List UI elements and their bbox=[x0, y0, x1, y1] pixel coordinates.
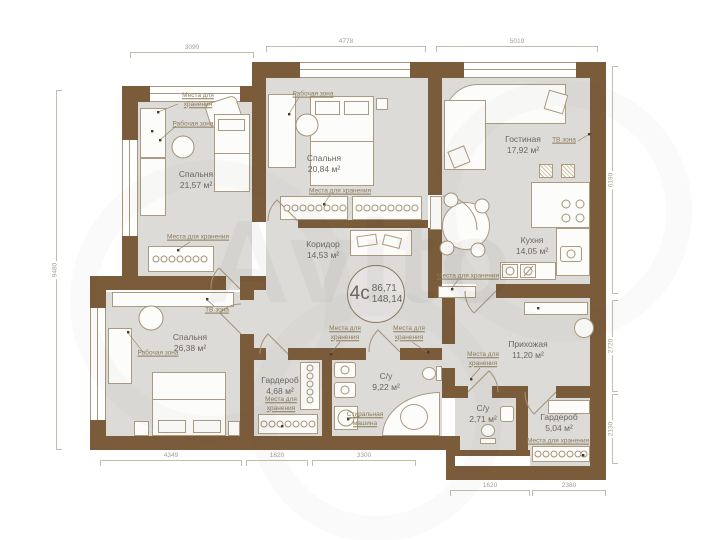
zone-label-work: Рабочая зона bbox=[138, 350, 179, 359]
zone-label-tv: ТВ зона bbox=[552, 137, 576, 146]
room-label-bathroom1: С/у 9,22 м² bbox=[372, 371, 400, 393]
dimension-right-1: 6190 bbox=[612, 66, 618, 294]
appliance-oven bbox=[520, 264, 536, 278]
room-label-hallway: Прихожая 11,20 м² bbox=[508, 339, 547, 361]
dimension-bottom-4: 1620 bbox=[450, 490, 530, 496]
nightstand bbox=[228, 421, 240, 436]
sink bbox=[334, 382, 356, 398]
door-gap-floor bbox=[366, 348, 400, 360]
room-name: Гардероб bbox=[540, 412, 577, 423]
storage-niche bbox=[438, 286, 476, 298]
dimension-bottom-2: 1820 bbox=[246, 460, 308, 466]
blanket-line bbox=[215, 153, 249, 154]
unit-type: 4с bbox=[350, 283, 370, 305]
pillow bbox=[193, 420, 221, 433]
wall-bathroom1-top-a bbox=[296, 348, 366, 360]
room-label-bedroom2: Спальня 20,84 м² bbox=[307, 153, 341, 175]
blanket-line bbox=[153, 399, 225, 400]
window-left-lower bbox=[90, 308, 106, 420]
room-name: С/у bbox=[469, 403, 497, 414]
wall-wardrobe1-top-a bbox=[254, 348, 266, 360]
door-gap-floor bbox=[528, 386, 556, 398]
zone-label-storage: Места для хранения bbox=[527, 438, 589, 447]
cushion bbox=[382, 234, 402, 249]
wall-wardrobe1-bathroom1 bbox=[322, 360, 332, 436]
wall-bedroom3-right-stub bbox=[240, 290, 254, 300]
window-bedroom2 bbox=[300, 62, 410, 78]
room-name: Спальня bbox=[173, 332, 207, 343]
wall-hallway-bottom-a bbox=[442, 386, 468, 398]
pillow bbox=[218, 119, 245, 131]
room-label-wardrobe1: Гардероб 4,68 м² bbox=[261, 375, 298, 397]
room-label-bathroom2: С/у 2,71 м² bbox=[469, 403, 497, 425]
kitchen-sink bbox=[560, 246, 582, 262]
double-bed bbox=[152, 372, 226, 436]
zone-label-work: Рабочая зона bbox=[293, 91, 334, 100]
wall-top-step bbox=[252, 62, 266, 102]
ottoman bbox=[574, 318, 594, 338]
bar-peninsula bbox=[531, 182, 590, 228]
room-label-bedroom1: Спальня 21,57 м² bbox=[179, 169, 213, 191]
dimension-top-2: 4778 bbox=[266, 46, 426, 52]
wall-hallway-bottom-b bbox=[492, 386, 528, 398]
zone-label-work: Рабочая зона bbox=[173, 121, 214, 130]
storage-rail-box bbox=[280, 196, 348, 220]
wall-bedroom3-right bbox=[240, 334, 254, 450]
room-area: 20,84 м² bbox=[307, 164, 341, 175]
wall-kitchen-bottom-a bbox=[428, 284, 438, 298]
wall-below-bedroom1-b bbox=[240, 276, 266, 290]
floor-plan: Спальня 21,57 м² Спальня 20,84 м² Гостин… bbox=[0, 0, 720, 540]
cushion bbox=[356, 234, 377, 248]
nightstand bbox=[134, 421, 149, 436]
room-name: Гардероб bbox=[261, 375, 298, 386]
zone-label-storage: Места для хранения bbox=[260, 396, 302, 414]
pillow bbox=[158, 420, 186, 433]
window-living bbox=[464, 62, 576, 78]
appliance-dishwasher bbox=[502, 264, 518, 278]
vestibule-landing bbox=[455, 456, 530, 466]
storage-rail-box bbox=[258, 414, 318, 434]
sink bbox=[500, 406, 514, 422]
room-area: 5,04 м² bbox=[540, 423, 577, 434]
room-label-living: Гостиная 17,92 м² bbox=[505, 134, 541, 156]
tv-cabinet bbox=[112, 292, 234, 307]
wall-below-bedroom2 bbox=[298, 220, 428, 228]
living-door-leaf bbox=[430, 196, 442, 230]
room-area: 11,20 м² bbox=[508, 350, 547, 361]
dimension-left: 9480 bbox=[56, 90, 62, 450]
nightstand bbox=[376, 98, 388, 110]
work-desk bbox=[268, 94, 296, 168]
zone-label-washer: Стиральная машина bbox=[344, 411, 386, 429]
unit-living-area: 86,71 bbox=[372, 283, 403, 295]
door-gap-floor bbox=[266, 348, 288, 360]
room-name: С/у bbox=[372, 371, 400, 382]
room-area: 14,05 м² bbox=[516, 246, 548, 257]
bar-stool bbox=[561, 164, 575, 178]
wall-hallway-bottom-c bbox=[556, 386, 606, 398]
room-area: 14,53 м² bbox=[306, 250, 340, 261]
wall-bathroom1-top-b bbox=[400, 348, 442, 360]
room-label-kitchen: Кухня 14,05 м² bbox=[516, 235, 548, 257]
zone-label-storage: Места для хранения bbox=[167, 234, 229, 243]
wall-bottom-main bbox=[90, 436, 460, 450]
room-area: 17,92 м² bbox=[505, 145, 541, 156]
zone-label-storage: Места для хранения bbox=[388, 325, 430, 343]
hanger-column bbox=[300, 362, 320, 410]
wardrobe-cabinet bbox=[140, 108, 166, 158]
room-name: Спальня bbox=[307, 153, 341, 164]
door-gap-floor bbox=[226, 276, 240, 290]
dimension-top-3: 5019 bbox=[436, 46, 598, 52]
zone-label-storage: Места для хранения bbox=[437, 273, 499, 282]
storage-rail-box bbox=[532, 446, 590, 462]
wall-right bbox=[590, 62, 606, 480]
dimension-bottom-3: 3300 bbox=[312, 460, 416, 466]
dining-table bbox=[442, 202, 490, 250]
room-name: Гостиная bbox=[505, 134, 541, 145]
wall-below-bedroom1-a bbox=[122, 276, 226, 290]
room-area: 21,57 м² bbox=[179, 180, 213, 191]
door-gap-floor bbox=[468, 386, 492, 398]
zone-label-storage: Места для хранения bbox=[309, 188, 371, 197]
single-bed bbox=[214, 114, 250, 192]
room-area: 2,71 м² bbox=[469, 414, 497, 425]
dimension-bottom-5: 2380 bbox=[532, 490, 606, 496]
blanket-line bbox=[311, 141, 373, 142]
wall-wardrobe1-top-b bbox=[288, 348, 296, 360]
zone-label-storage: Места для хранения bbox=[462, 351, 504, 369]
work-desk bbox=[140, 158, 166, 216]
zone-label-storage: Места для хранения bbox=[324, 325, 366, 343]
pillow bbox=[344, 101, 369, 115]
unit-total-area: 148,14 bbox=[372, 294, 403, 306]
door-gap-floor bbox=[442, 344, 455, 368]
dimension-bottom-1: 4349 bbox=[100, 460, 242, 466]
room-label-corridor: Коридор 14,53 м² bbox=[306, 239, 340, 261]
room-label-wardrobe2: Гардероб 5,04 м² bbox=[540, 412, 577, 434]
wall-kitchen-bottom-b bbox=[496, 284, 606, 298]
window-left-upper bbox=[122, 140, 138, 236]
room-area: 9,22 м² bbox=[372, 382, 400, 393]
toilet-tank bbox=[480, 438, 496, 444]
work-desk bbox=[108, 328, 132, 384]
unit-type-badge: 4с 86,71 148,14 bbox=[347, 265, 405, 323]
room-name: Коридор bbox=[306, 239, 340, 250]
toilet-bowl bbox=[422, 367, 436, 380]
dimension-right-3: 2130 bbox=[612, 394, 618, 464]
hallway-shelf bbox=[524, 302, 588, 315]
wall-annex-bottom bbox=[446, 466, 606, 480]
storage-rail-box bbox=[352, 196, 422, 220]
room-name: Спальня bbox=[179, 169, 213, 180]
dimension-top-1: 3090 bbox=[130, 52, 254, 58]
wall-hallway-left-a bbox=[442, 298, 455, 344]
toilet-bowl bbox=[481, 424, 495, 437]
storage-rail-box bbox=[148, 246, 214, 272]
room-name: Кухня bbox=[516, 235, 548, 246]
corridor-bench bbox=[350, 230, 412, 256]
door-gap-floor bbox=[476, 284, 496, 298]
bar-stool bbox=[539, 164, 553, 178]
room-name: Прихожая bbox=[508, 339, 547, 350]
sink bbox=[334, 362, 356, 378]
bathtub-drum bbox=[400, 404, 428, 430]
zone-label-tv: ТВ зона bbox=[205, 307, 229, 316]
wall-bedroom1-bedroom2 bbox=[252, 102, 266, 222]
wall-bedroom2-living bbox=[428, 62, 442, 195]
toilet-tank bbox=[436, 366, 442, 381]
pillow bbox=[315, 101, 340, 115]
zone-label-storage: Места для хранения bbox=[177, 92, 219, 110]
dimension-right-2: 2720 bbox=[612, 300, 618, 392]
